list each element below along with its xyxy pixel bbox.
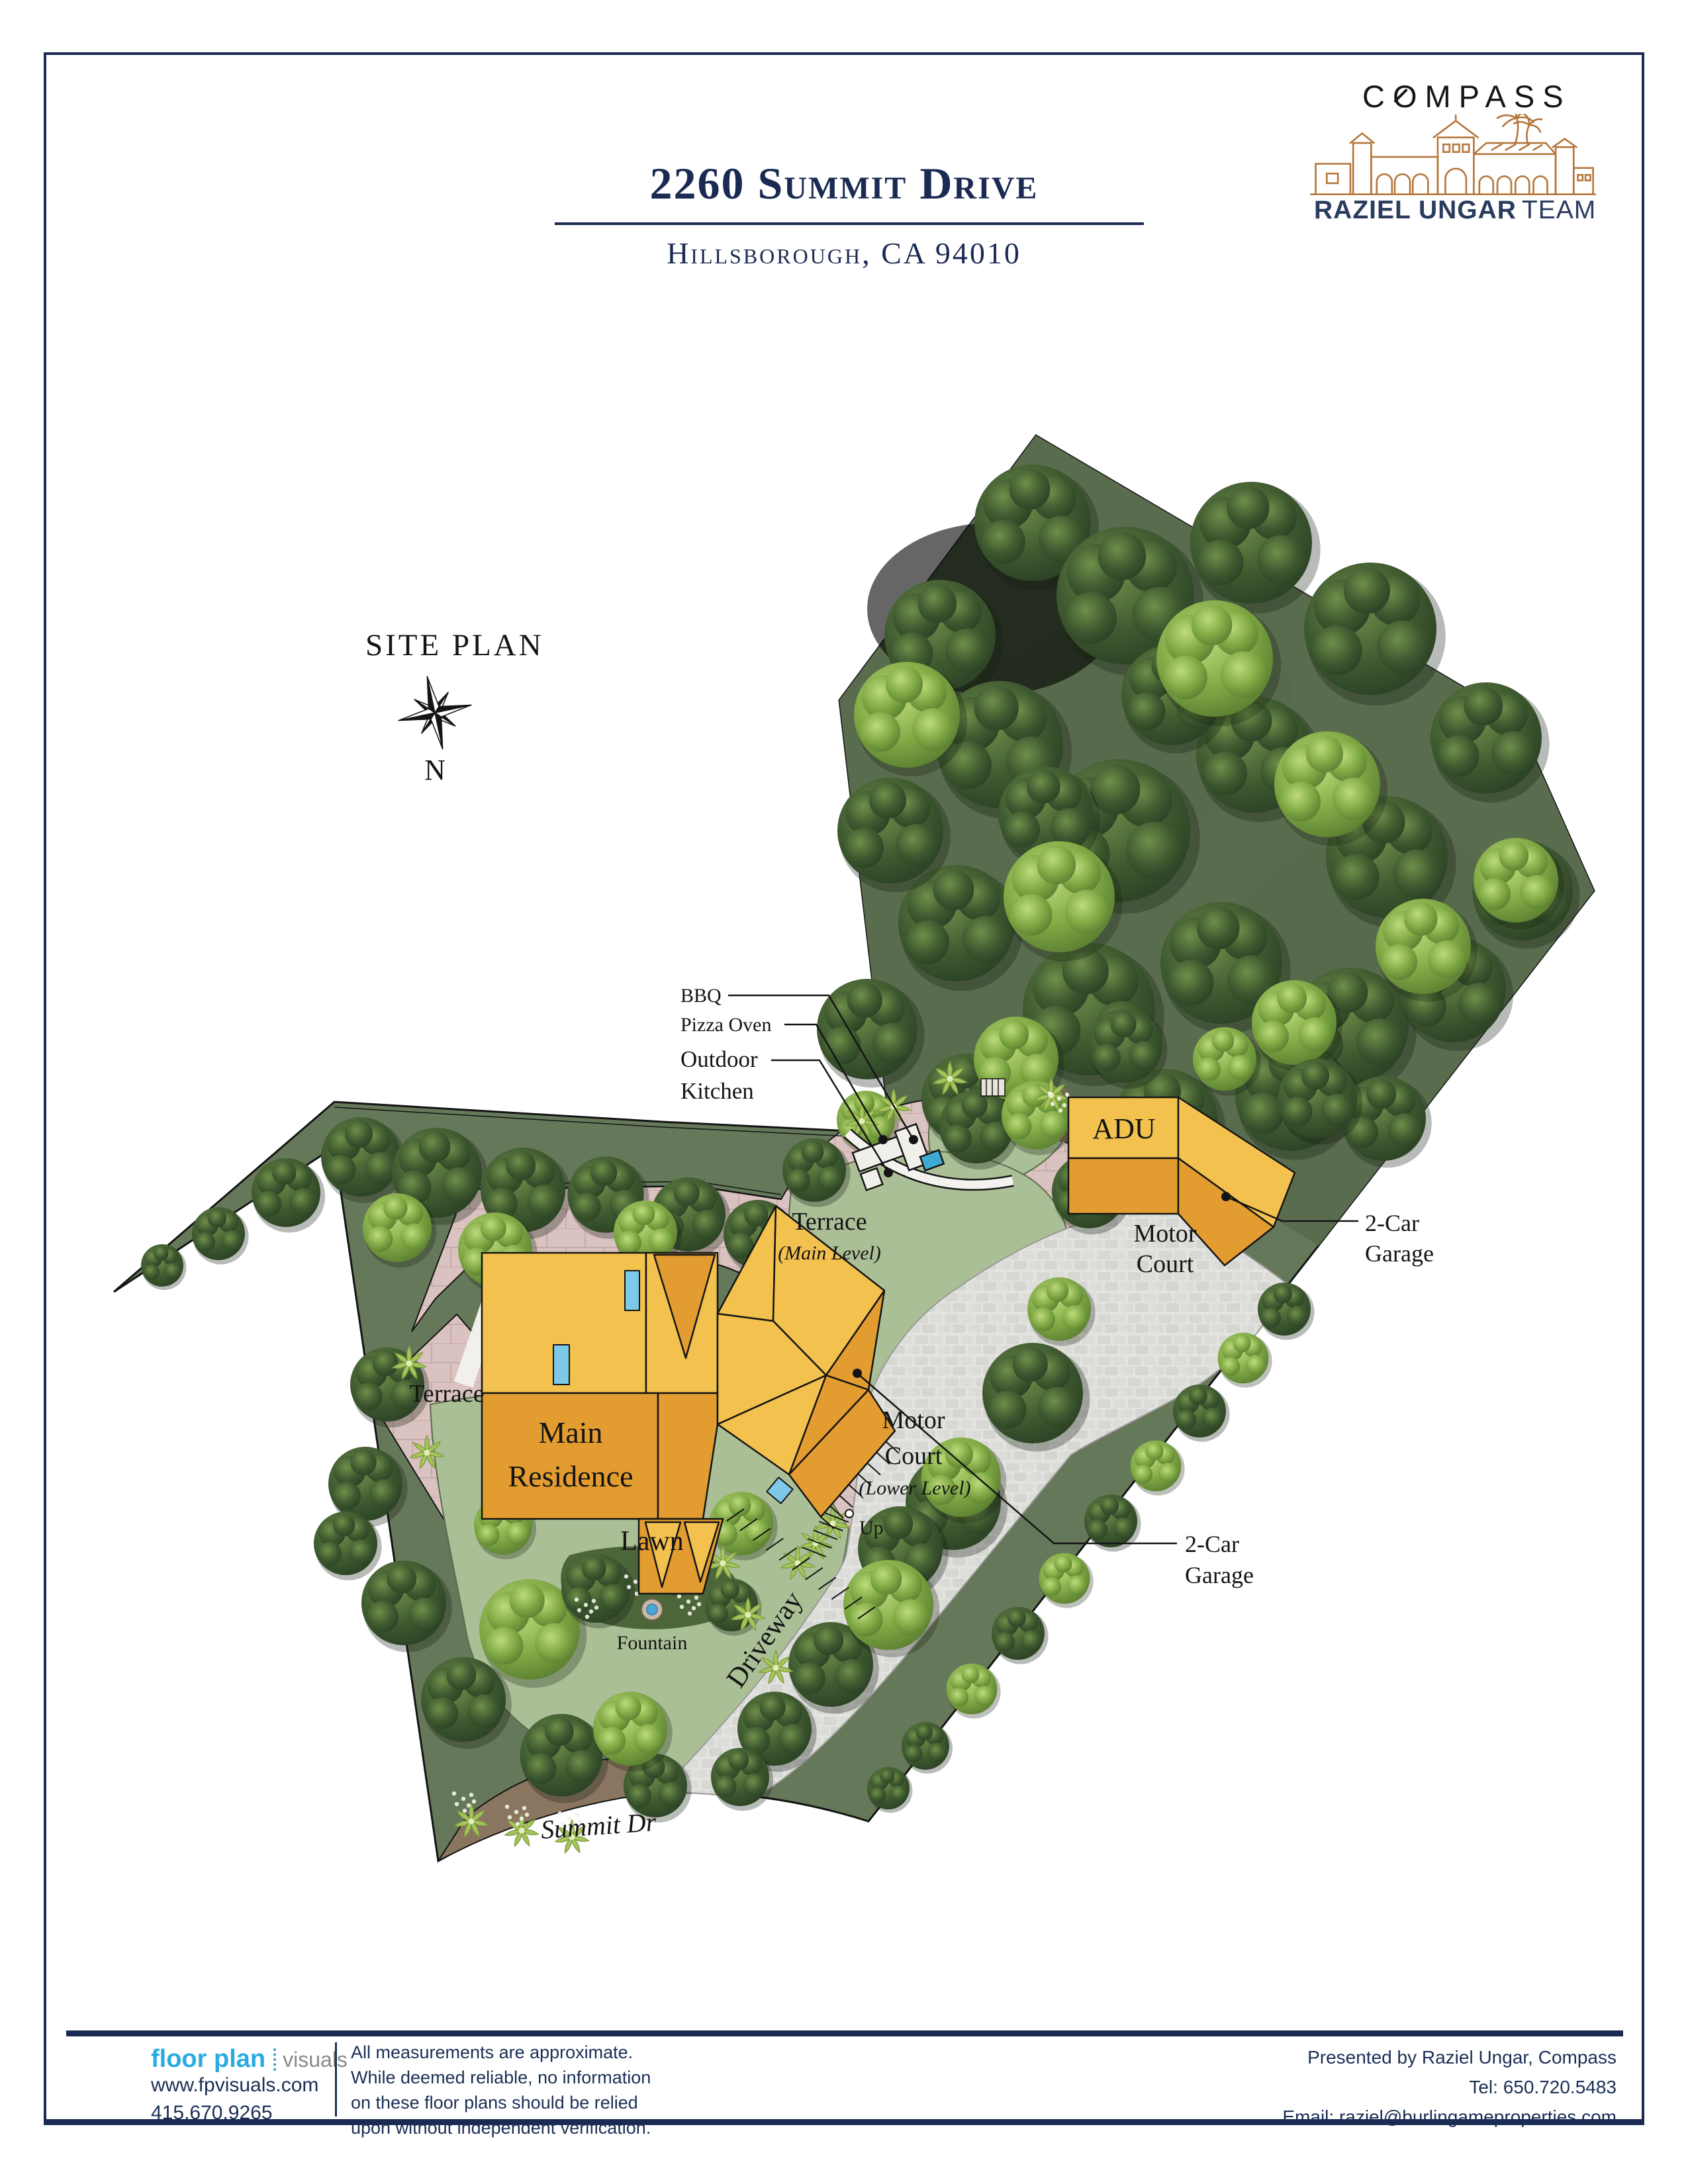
up-marker: [845, 1510, 853, 1518]
label-up: Up: [859, 1517, 884, 1539]
svg-text:Residence: Residence: [508, 1459, 633, 1493]
page-subtitle: Hillsborough, CA 94010: [0, 236, 1688, 271]
presented-by: Presented by Raziel Ungar, Compass: [1282, 2042, 1617, 2072]
label-lawn: Lawn: [620, 1526, 684, 1557]
team-name: RAZIEL UNGARTEAM: [1314, 196, 1592, 225]
label-main-residence: Main: [538, 1416, 602, 1449]
svg-text:(Main Level): (Main Level): [778, 1242, 881, 1264]
label-bbq: BBQ: [680, 985, 722, 1007]
label-garage-lower: 2-Car: [1185, 1531, 1239, 1557]
agent-email[interactable]: Email: raziel@burlingameproperties.com: [1282, 2102, 1617, 2132]
disclaimer-text: All measurements are approximate. While …: [351, 2040, 651, 2140]
svg-text:Kitchen: Kitchen: [680, 1078, 754, 1104]
label-terrace-left: Terrace: [409, 1380, 484, 1408]
logo-divider-icon: [273, 2048, 276, 2071]
title-underline: [555, 222, 1144, 225]
north-label: N: [405, 753, 465, 787]
label-adu: ADU: [1092, 1113, 1155, 1145]
label-motor-court-lower: Motor: [882, 1406, 945, 1434]
svg-text:Garage: Garage: [1365, 1240, 1434, 1267]
footer-divider: [335, 2042, 337, 2116]
footer-separator: [66, 2030, 1623, 2036]
compass-rose-icon: [392, 670, 478, 759]
label-fountain: Fountain: [617, 1632, 688, 1654]
site-plan-heading: SITE PLAN: [365, 627, 544, 663]
svg-text:Court: Court: [1137, 1250, 1194, 1278]
svg-text:Garage: Garage: [1185, 1562, 1254, 1588]
compass-logo: COMPASS: [1362, 78, 1640, 114]
mission-building-illustration: [1307, 114, 1599, 203]
label-motor-court: Motor: [1134, 1220, 1197, 1248]
label-terrace-main: Terrace: [792, 1208, 867, 1236]
label-outdoor-kitchen: Outdoor: [680, 1046, 758, 1072]
vendor-website[interactable]: www.fpvisuals.com: [151, 2074, 318, 2097]
agent-tel: Tel: 650.720.5483: [1282, 2072, 1617, 2102]
site-plan-drawing: BBQ Pizza Oven Outdoor Kitchen Terrace (…: [0, 0, 1688, 2184]
floor-plan-visuals-logo: floor planvisuals: [151, 2045, 348, 2073]
label-pizza-oven: Pizza Oven: [680, 1014, 771, 1036]
vendor-phone: 415.670.9265: [151, 2102, 273, 2124]
agent-contact-block: Presented by Raziel Ungar, Compass Tel: …: [1282, 2042, 1617, 2132]
svg-text:Court: Court: [885, 1442, 943, 1470]
label-garage-adu: 2-Car: [1365, 1210, 1419, 1236]
svg-text:(Lower Level): (Lower Level): [859, 1477, 970, 1499]
